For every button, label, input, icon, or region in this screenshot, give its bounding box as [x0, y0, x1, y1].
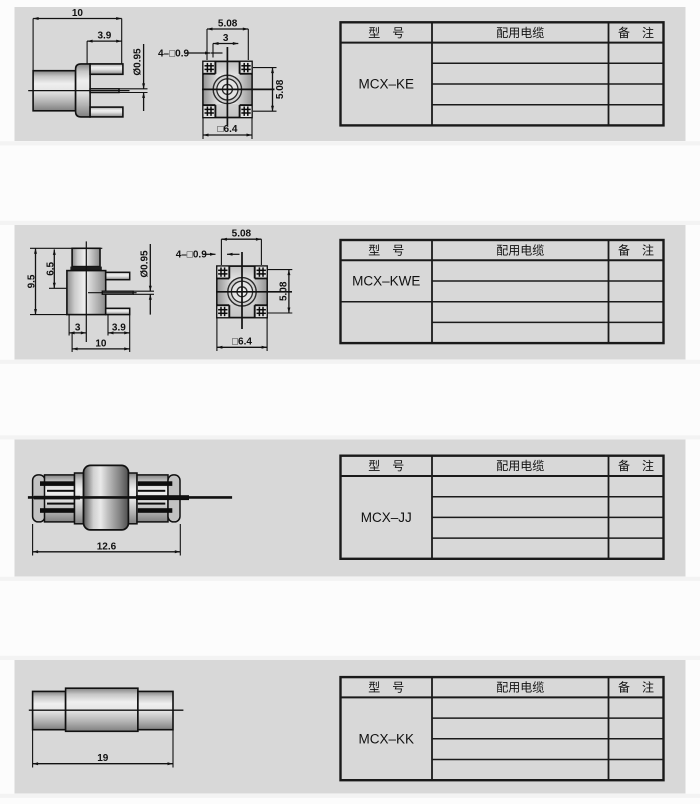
svg-text:Ø0.95: Ø0.95	[140, 250, 151, 278]
svg-text:□6.4: □6.4	[232, 336, 252, 347]
svg-text:12.6: 12.6	[97, 541, 117, 552]
svg-text:MCX–KE: MCX–KE	[358, 77, 414, 92]
svg-text:MCX–KWE: MCX–KWE	[352, 274, 420, 289]
svg-text:10: 10	[95, 338, 107, 349]
svg-text:6.5: 6.5	[45, 261, 56, 275]
svg-text:3.9: 3.9	[112, 322, 126, 333]
svg-text:配用电缆: 配用电缆	[496, 26, 544, 40]
svg-text:3: 3	[223, 33, 229, 44]
svg-text:Ø0.95: Ø0.95	[133, 48, 144, 76]
svg-text:配用电缆: 配用电缆	[496, 459, 544, 473]
svg-text:5.08: 5.08	[232, 229, 252, 240]
svg-text:4–□0.9: 4–□0.9	[158, 49, 190, 60]
svg-text:4–□0.9: 4–□0.9	[176, 250, 208, 261]
svg-text:□6.4: □6.4	[218, 124, 238, 135]
svg-text:型 号: 型 号	[368, 26, 404, 40]
svg-text:配用电缆: 配用电缆	[496, 681, 544, 695]
svg-text:3: 3	[75, 322, 81, 333]
svg-text:型 号: 型 号	[368, 244, 404, 258]
svg-text:5.08: 5.08	[275, 79, 286, 99]
svg-text:9.5: 9.5	[27, 274, 38, 288]
svg-text:3.9: 3.9	[97, 31, 111, 42]
svg-text:备 注: 备 注	[618, 458, 654, 473]
svg-text:配用电缆: 配用电缆	[496, 244, 544, 258]
svg-text:备 注: 备 注	[618, 680, 654, 695]
svg-text:5.08: 5.08	[279, 281, 290, 301]
svg-text:备 注: 备 注	[618, 243, 654, 258]
svg-text:备 注: 备 注	[618, 25, 654, 40]
svg-text:MCX–JJ: MCX–JJ	[361, 510, 412, 525]
svg-text:MCX–KK: MCX–KK	[358, 731, 414, 746]
svg-text:型 号: 型 号	[368, 681, 404, 695]
svg-text:型 号: 型 号	[368, 459, 404, 473]
svg-text:5.08: 5.08	[218, 19, 238, 30]
svg-text:10: 10	[72, 8, 84, 19]
svg-text:19: 19	[97, 753, 109, 764]
